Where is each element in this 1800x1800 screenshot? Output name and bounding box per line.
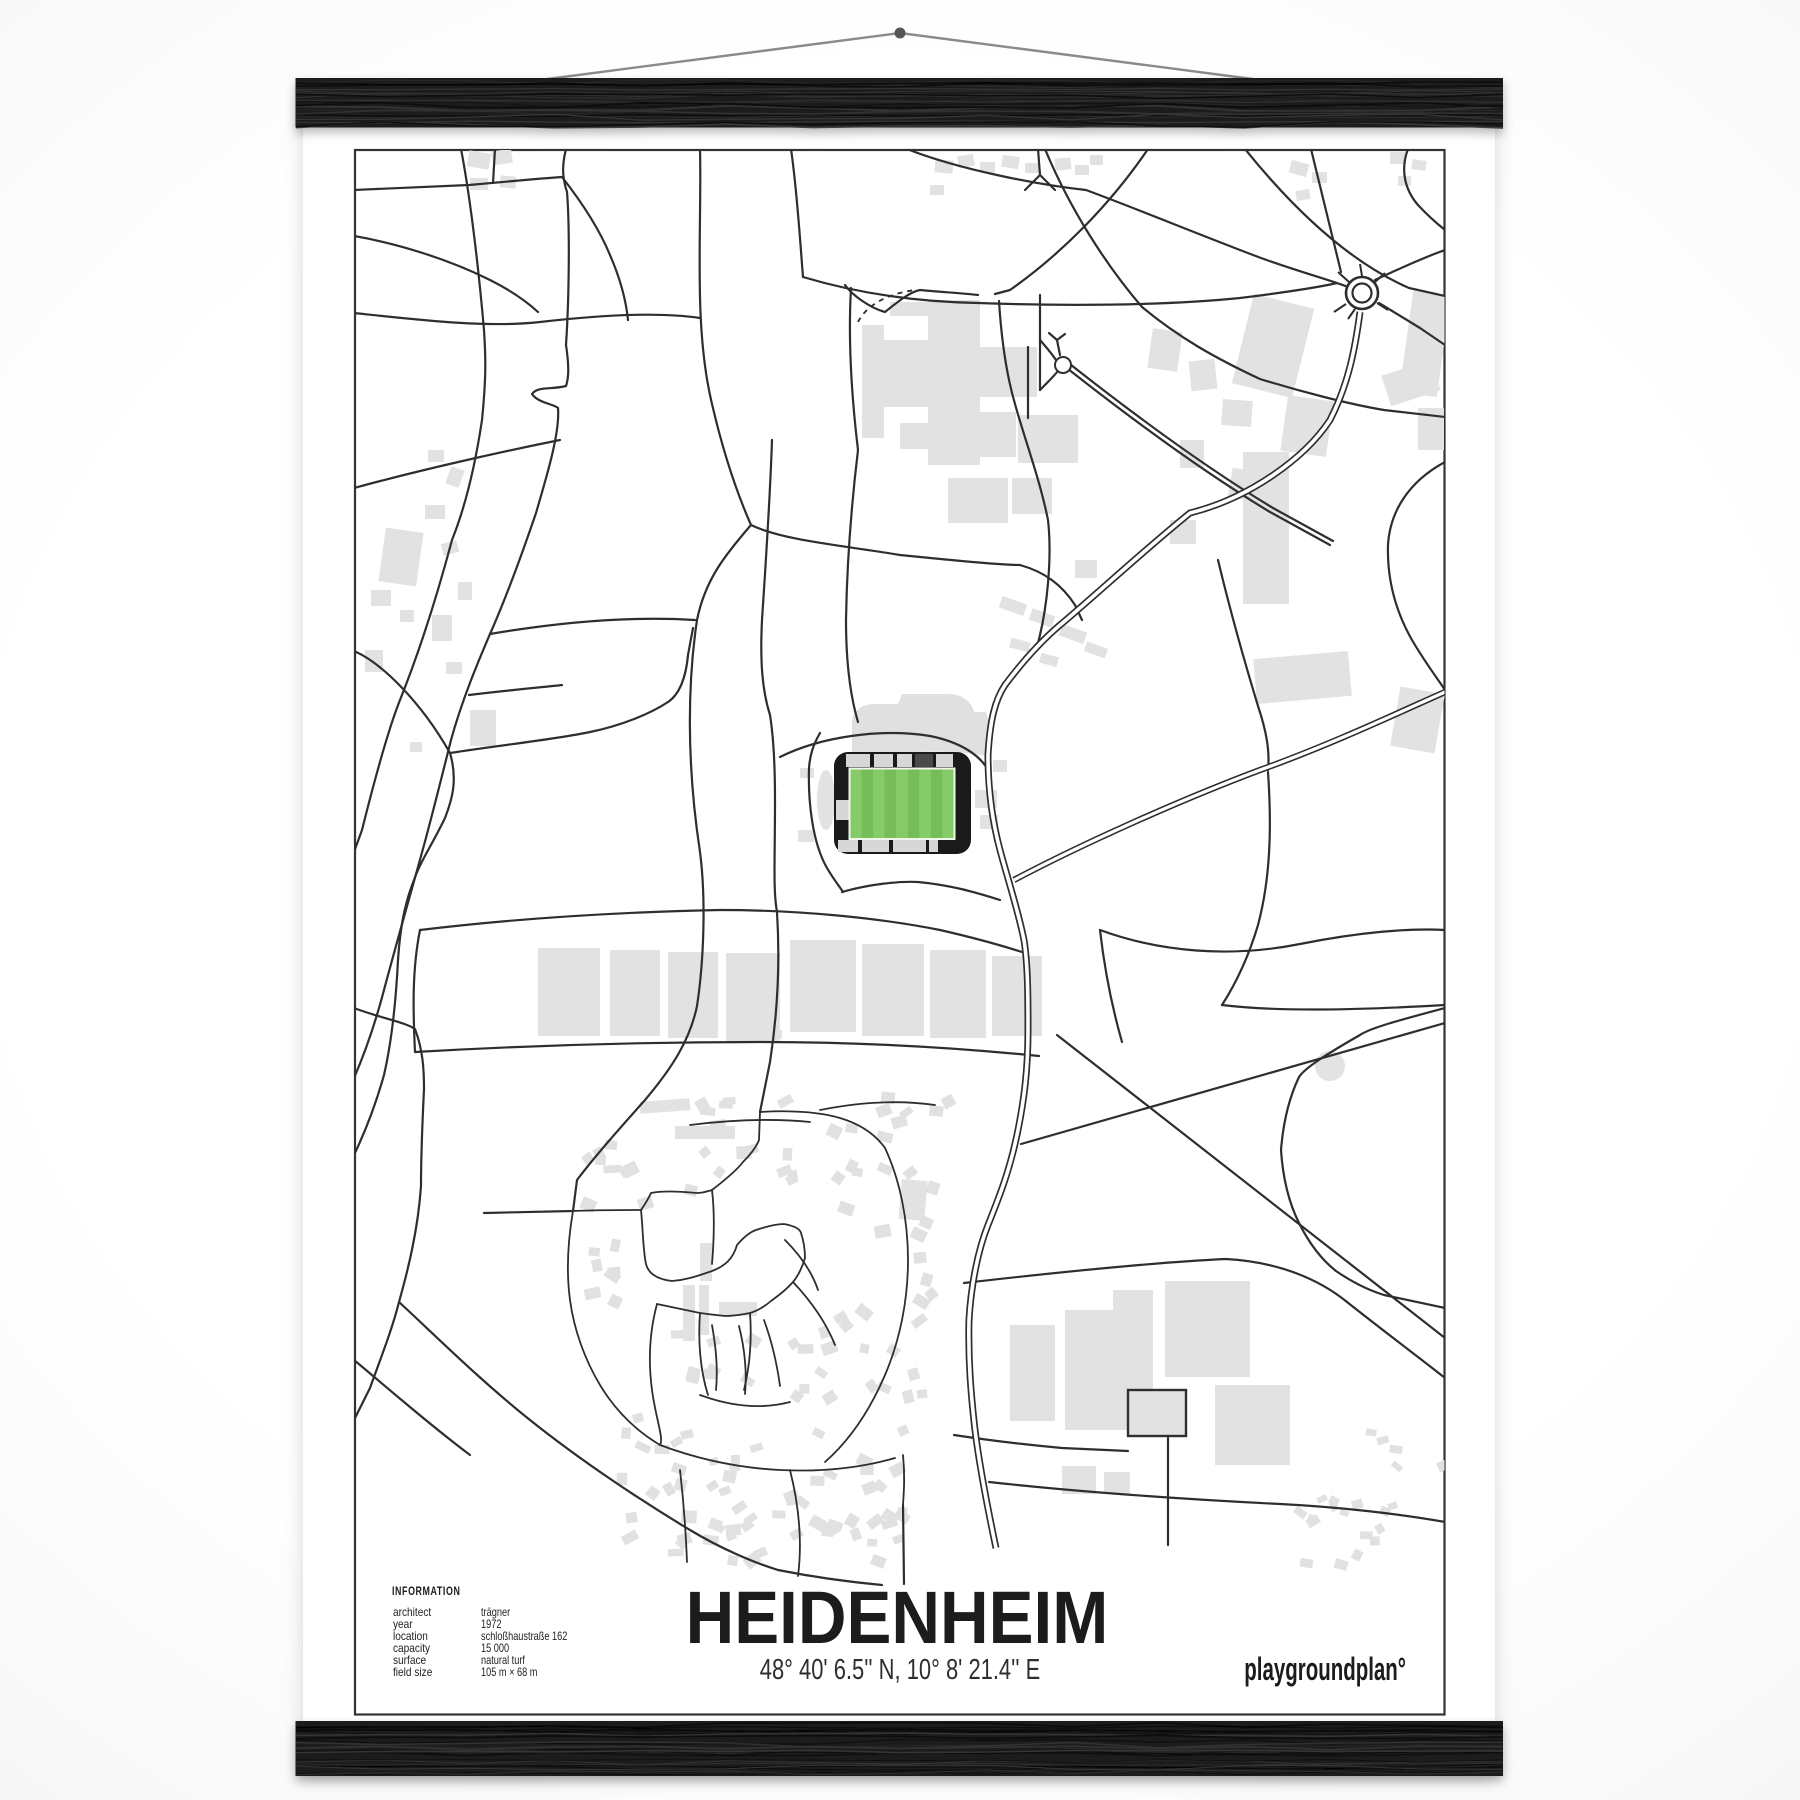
svg-text:architect: architect [393,1606,431,1619]
svg-text:1972: 1972 [481,1619,502,1631]
svg-text:field size: field size [393,1666,432,1679]
svg-text:15 000: 15 000 [481,1643,509,1655]
svg-text:105 m × 68 m: 105 m × 68 m [481,1667,537,1679]
svg-text:trägner: trägner [481,1607,511,1619]
svg-text:year: year [393,1618,413,1631]
svg-text:playgroundplan°: playgroundplan° [1244,1651,1406,1687]
svg-text:surface: surface [393,1654,426,1667]
svg-text:HEIDENHEIM: HEIDENHEIM [686,1576,1109,1659]
svg-text:48° 40' 6.5'' N, 10° 8' 21.4'': 48° 40' 6.5'' N, 10° 8' 21.4'' E [760,1654,1040,1685]
svg-text:location: location [393,1630,428,1643]
svg-text:INFORMATION: INFORMATION [392,1585,460,1599]
svg-text:natural turf: natural turf [481,1655,525,1667]
svg-text:schloßhaustraße 162: schloßhaustraße 162 [481,1631,568,1643]
svg-text:capacity: capacity [393,1642,431,1655]
